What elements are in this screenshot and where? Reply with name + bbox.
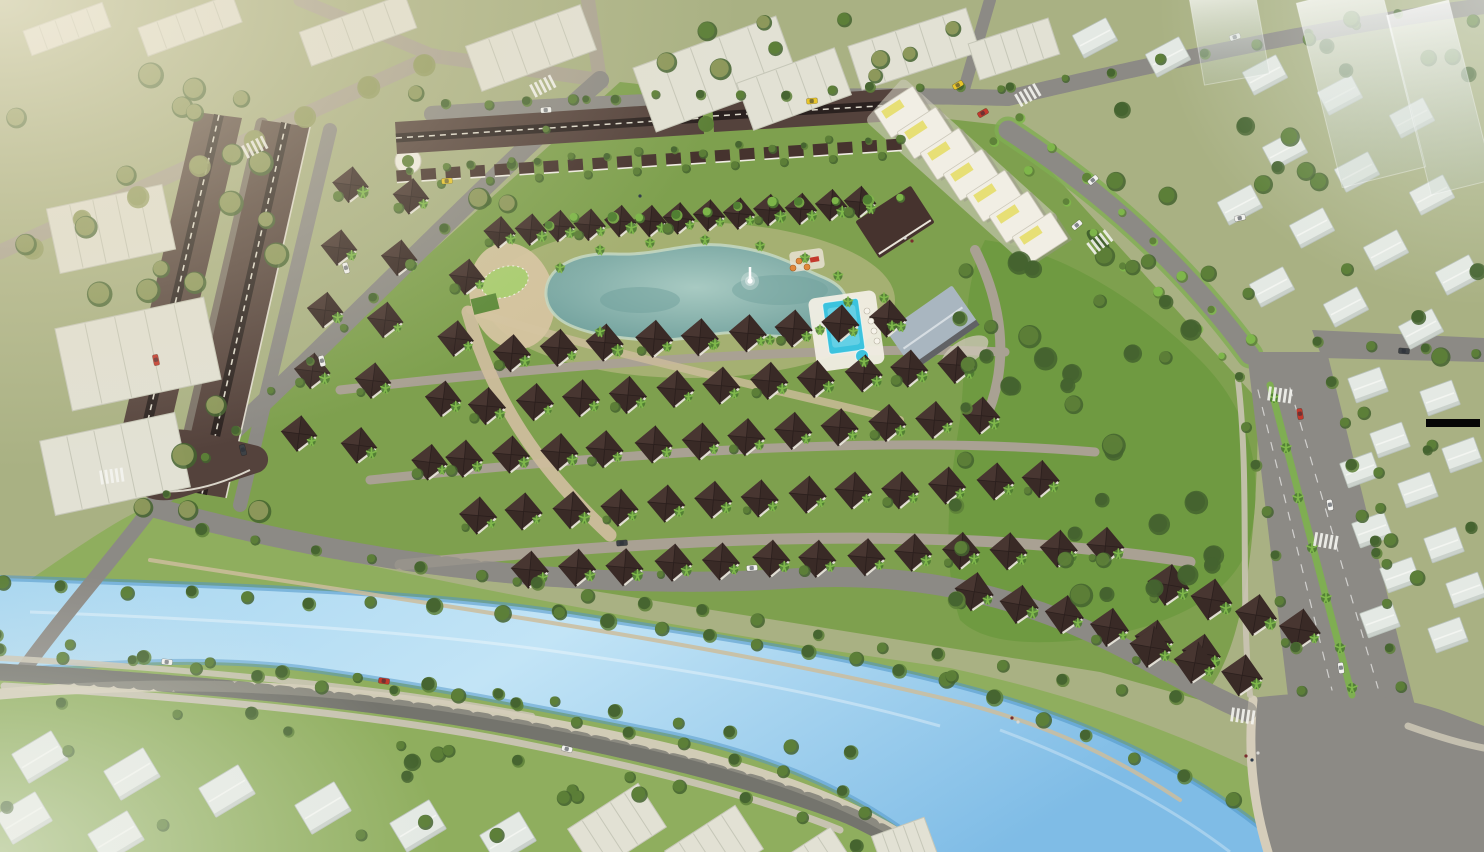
tree-icon [657, 571, 664, 578]
tree-icon [863, 195, 873, 205]
tree-icon [844, 207, 853, 216]
person-dot [903, 236, 906, 239]
tree-icon [878, 152, 885, 159]
tree-icon [1297, 686, 1306, 695]
tree-icon [1370, 536, 1380, 546]
tree-icon [958, 452, 972, 466]
tree-icon [1149, 515, 1167, 533]
tree-icon [1062, 75, 1069, 82]
umbrella-icon [864, 308, 870, 314]
aerial-render-canvas [0, 0, 1484, 852]
umbrella-icon [871, 328, 877, 334]
tree-icon [1271, 550, 1280, 559]
tree-icon [1096, 553, 1109, 566]
tree-icon [1241, 422, 1250, 431]
umbrella-icon [874, 338, 880, 344]
tree-icon [1204, 558, 1218, 572]
tree-icon [850, 839, 862, 851]
tree-icon [892, 664, 904, 676]
tree-icon [1116, 684, 1126, 694]
tree-icon [751, 614, 763, 626]
tree-icon [980, 349, 992, 361]
tree-icon [916, 83, 923, 90]
tree-icon [1061, 378, 1073, 390]
tree-icon [1384, 534, 1396, 546]
car [746, 565, 757, 572]
tree-icon [1065, 396, 1080, 411]
tree-icon [1465, 522, 1475, 532]
townhouse [837, 142, 853, 155]
tree-icon [813, 630, 822, 639]
tree-icon [896, 194, 903, 201]
tree-icon [1346, 459, 1357, 470]
tree-icon [1024, 166, 1033, 175]
tree-icon [1006, 82, 1014, 90]
tree-icon [949, 499, 962, 512]
tree-icon [1382, 599, 1390, 607]
tree-icon [740, 792, 751, 803]
tree-icon [1024, 487, 1031, 494]
tree-icon [1019, 326, 1038, 345]
tree-icon [1036, 713, 1050, 727]
tree-icon [581, 589, 593, 601]
tree-icon [751, 639, 761, 649]
tree-icon [1035, 348, 1054, 367]
tree-icon [955, 541, 968, 554]
tree-icon [1235, 372, 1243, 380]
tree-icon [1262, 506, 1272, 516]
tree-icon [673, 718, 683, 728]
tree-icon [1178, 565, 1195, 582]
person-dot [1244, 754, 1247, 757]
tree-icon [1275, 596, 1284, 605]
car [616, 540, 627, 547]
tree-icon [1423, 445, 1431, 453]
estate-master-plan-render [0, 0, 1484, 852]
car-windshield [1339, 665, 1344, 670]
tree-icon [837, 13, 849, 25]
tree-icon [1009, 252, 1028, 271]
tree-icon [865, 137, 871, 143]
white-haze-bottomleft [0, 520, 520, 852]
tree-icon [946, 670, 957, 681]
tree-icon [1015, 113, 1023, 121]
person-dot [1016, 720, 1019, 723]
tree-icon [632, 787, 646, 801]
tree-icon [903, 47, 916, 60]
tree-icon [678, 738, 689, 749]
tree-icon [777, 765, 788, 776]
tree-icon [703, 629, 715, 641]
tree-icon [1356, 510, 1367, 521]
car [1337, 662, 1344, 674]
tree-icon [989, 137, 997, 145]
tree-icon [1340, 418, 1349, 427]
tree-icon [1375, 503, 1384, 512]
tree-icon [1186, 492, 1205, 511]
townhouse-facade [838, 154, 853, 155]
tree-icon [696, 604, 707, 615]
tree-icon [1080, 730, 1091, 741]
tree-icon [723, 726, 735, 738]
tree-icon [869, 69, 881, 81]
tree-icon [1371, 548, 1380, 557]
tree-icon [1290, 642, 1300, 652]
tree-icon [571, 717, 581, 727]
tree-icon [1382, 559, 1391, 568]
car-windshield [1328, 502, 1333, 507]
tree-icon [655, 622, 667, 634]
tree-icon [600, 614, 614, 628]
tree-icon [571, 790, 582, 801]
tree-icon [531, 577, 543, 589]
tree-icon [829, 155, 836, 162]
tree-icon [550, 696, 559, 705]
tree-icon [1385, 643, 1394, 652]
tree-icon [948, 592, 963, 607]
tree-icon [1358, 407, 1369, 418]
tree-icon [608, 704, 621, 717]
tree-icon [825, 135, 832, 142]
tree-icon [1281, 638, 1289, 646]
black-line-artifact [1426, 419, 1480, 427]
tree-icon [1128, 753, 1139, 764]
tree-icon [946, 21, 959, 34]
tree-icon [1326, 376, 1337, 387]
tree-icon [961, 357, 975, 371]
tree-icon [997, 85, 1004, 92]
car-windshield [749, 566, 754, 570]
tree-icon [997, 660, 1008, 671]
tree-icon [1095, 493, 1107, 505]
tree-icon [1068, 527, 1080, 539]
tree-icon [872, 51, 888, 67]
tree-icon [953, 311, 965, 323]
person-dot [910, 239, 913, 242]
tree-icon [1103, 435, 1123, 455]
person-dot [1010, 716, 1013, 719]
tree-icon [960, 402, 970, 412]
tree-icon [638, 597, 650, 609]
tree-icon [859, 807, 870, 818]
tree-icon [837, 785, 847, 795]
townhouse-facade [887, 150, 902, 151]
tree-icon [987, 690, 1001, 704]
south-junction-plaza [1251, 693, 1484, 852]
tree-icon [1056, 674, 1067, 685]
tree-icon [802, 645, 815, 658]
tree-icon [1004, 379, 1018, 393]
tree-icon [1396, 681, 1406, 691]
tree-icon [932, 648, 943, 659]
tree-icon [554, 607, 565, 618]
tree-icon [832, 197, 839, 204]
townhouse-facade [862, 152, 877, 153]
tree-icon [882, 497, 891, 506]
tree-icon [673, 780, 685, 792]
tree-icon [623, 727, 634, 738]
tree-icon [1410, 571, 1423, 584]
tree-icon [1091, 635, 1100, 644]
tree-icon [984, 320, 996, 332]
tree-icon [557, 791, 570, 804]
tree-icon [877, 643, 887, 653]
tree-icon [870, 430, 879, 439]
tree-icon [850, 652, 862, 664]
tree-icon [1226, 793, 1240, 807]
tree-icon [797, 812, 807, 822]
tree-icon [1146, 580, 1161, 595]
tree-icon [1169, 690, 1182, 703]
tree-icon [891, 375, 901, 385]
tree-icon [625, 772, 635, 782]
tree-icon [1089, 554, 1096, 561]
tree-icon [1090, 229, 1098, 237]
tree-icon [844, 746, 856, 758]
tree-icon [1071, 585, 1090, 604]
tree-icon [1100, 587, 1112, 599]
tree-icon [828, 85, 837, 94]
tree-icon [1132, 656, 1139, 663]
tree-icon [865, 82, 874, 91]
person-dot [1250, 758, 1253, 761]
umbrella-icon [868, 318, 874, 324]
tree-icon [896, 135, 904, 143]
tree-icon [959, 264, 971, 276]
car-windshield [1298, 411, 1303, 416]
person-dot [1256, 751, 1259, 754]
tree-icon [729, 754, 740, 765]
townhouse-roof [837, 142, 853, 155]
tree-icon [1178, 769, 1191, 782]
tree-icon [799, 565, 809, 575]
tree-icon [1058, 552, 1072, 566]
tree-icon [1373, 467, 1382, 476]
tree-icon [784, 740, 797, 753]
car-windshield [619, 541, 624, 545]
tree-icon [944, 559, 952, 567]
tree-icon [1063, 198, 1070, 205]
tree-icon [1251, 460, 1261, 470]
tree-icon [1047, 143, 1055, 151]
sepia-haze-topleft [0, 0, 820, 520]
